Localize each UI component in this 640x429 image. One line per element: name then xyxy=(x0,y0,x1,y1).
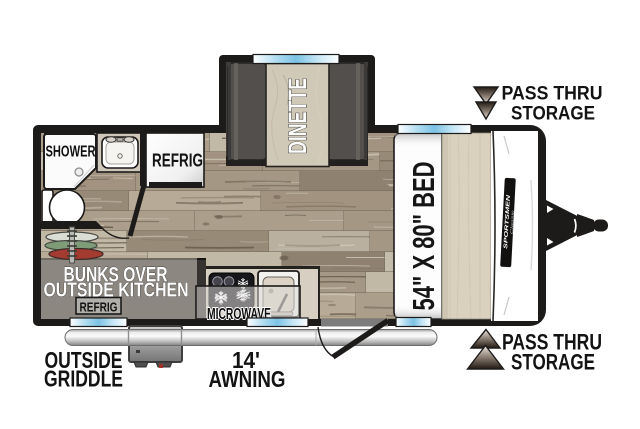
svg-text:REFRIG: REFRIG xyxy=(80,300,118,315)
svg-text:DINETTE: DINETTE xyxy=(284,78,312,154)
svg-text:STORAGE: STORAGE xyxy=(511,350,595,375)
svg-text:PASS THRU: PASS THRU xyxy=(502,83,603,105)
svg-text:AWNING: AWNING xyxy=(209,366,286,392)
svg-text:REFRIG: REFRIG xyxy=(152,151,203,171)
svg-text:STORAGE: STORAGE xyxy=(511,103,595,125)
svg-text:SHOWER: SHOWER xyxy=(46,144,96,161)
svg-text:GRIDDLE: GRIDDLE xyxy=(44,366,123,392)
svg-text:54" X 80" BED: 54" X 80" BED xyxy=(406,162,441,311)
svg-text:OUTSIDE KITCHEN: OUTSIDE KITCHEN xyxy=(44,280,189,302)
